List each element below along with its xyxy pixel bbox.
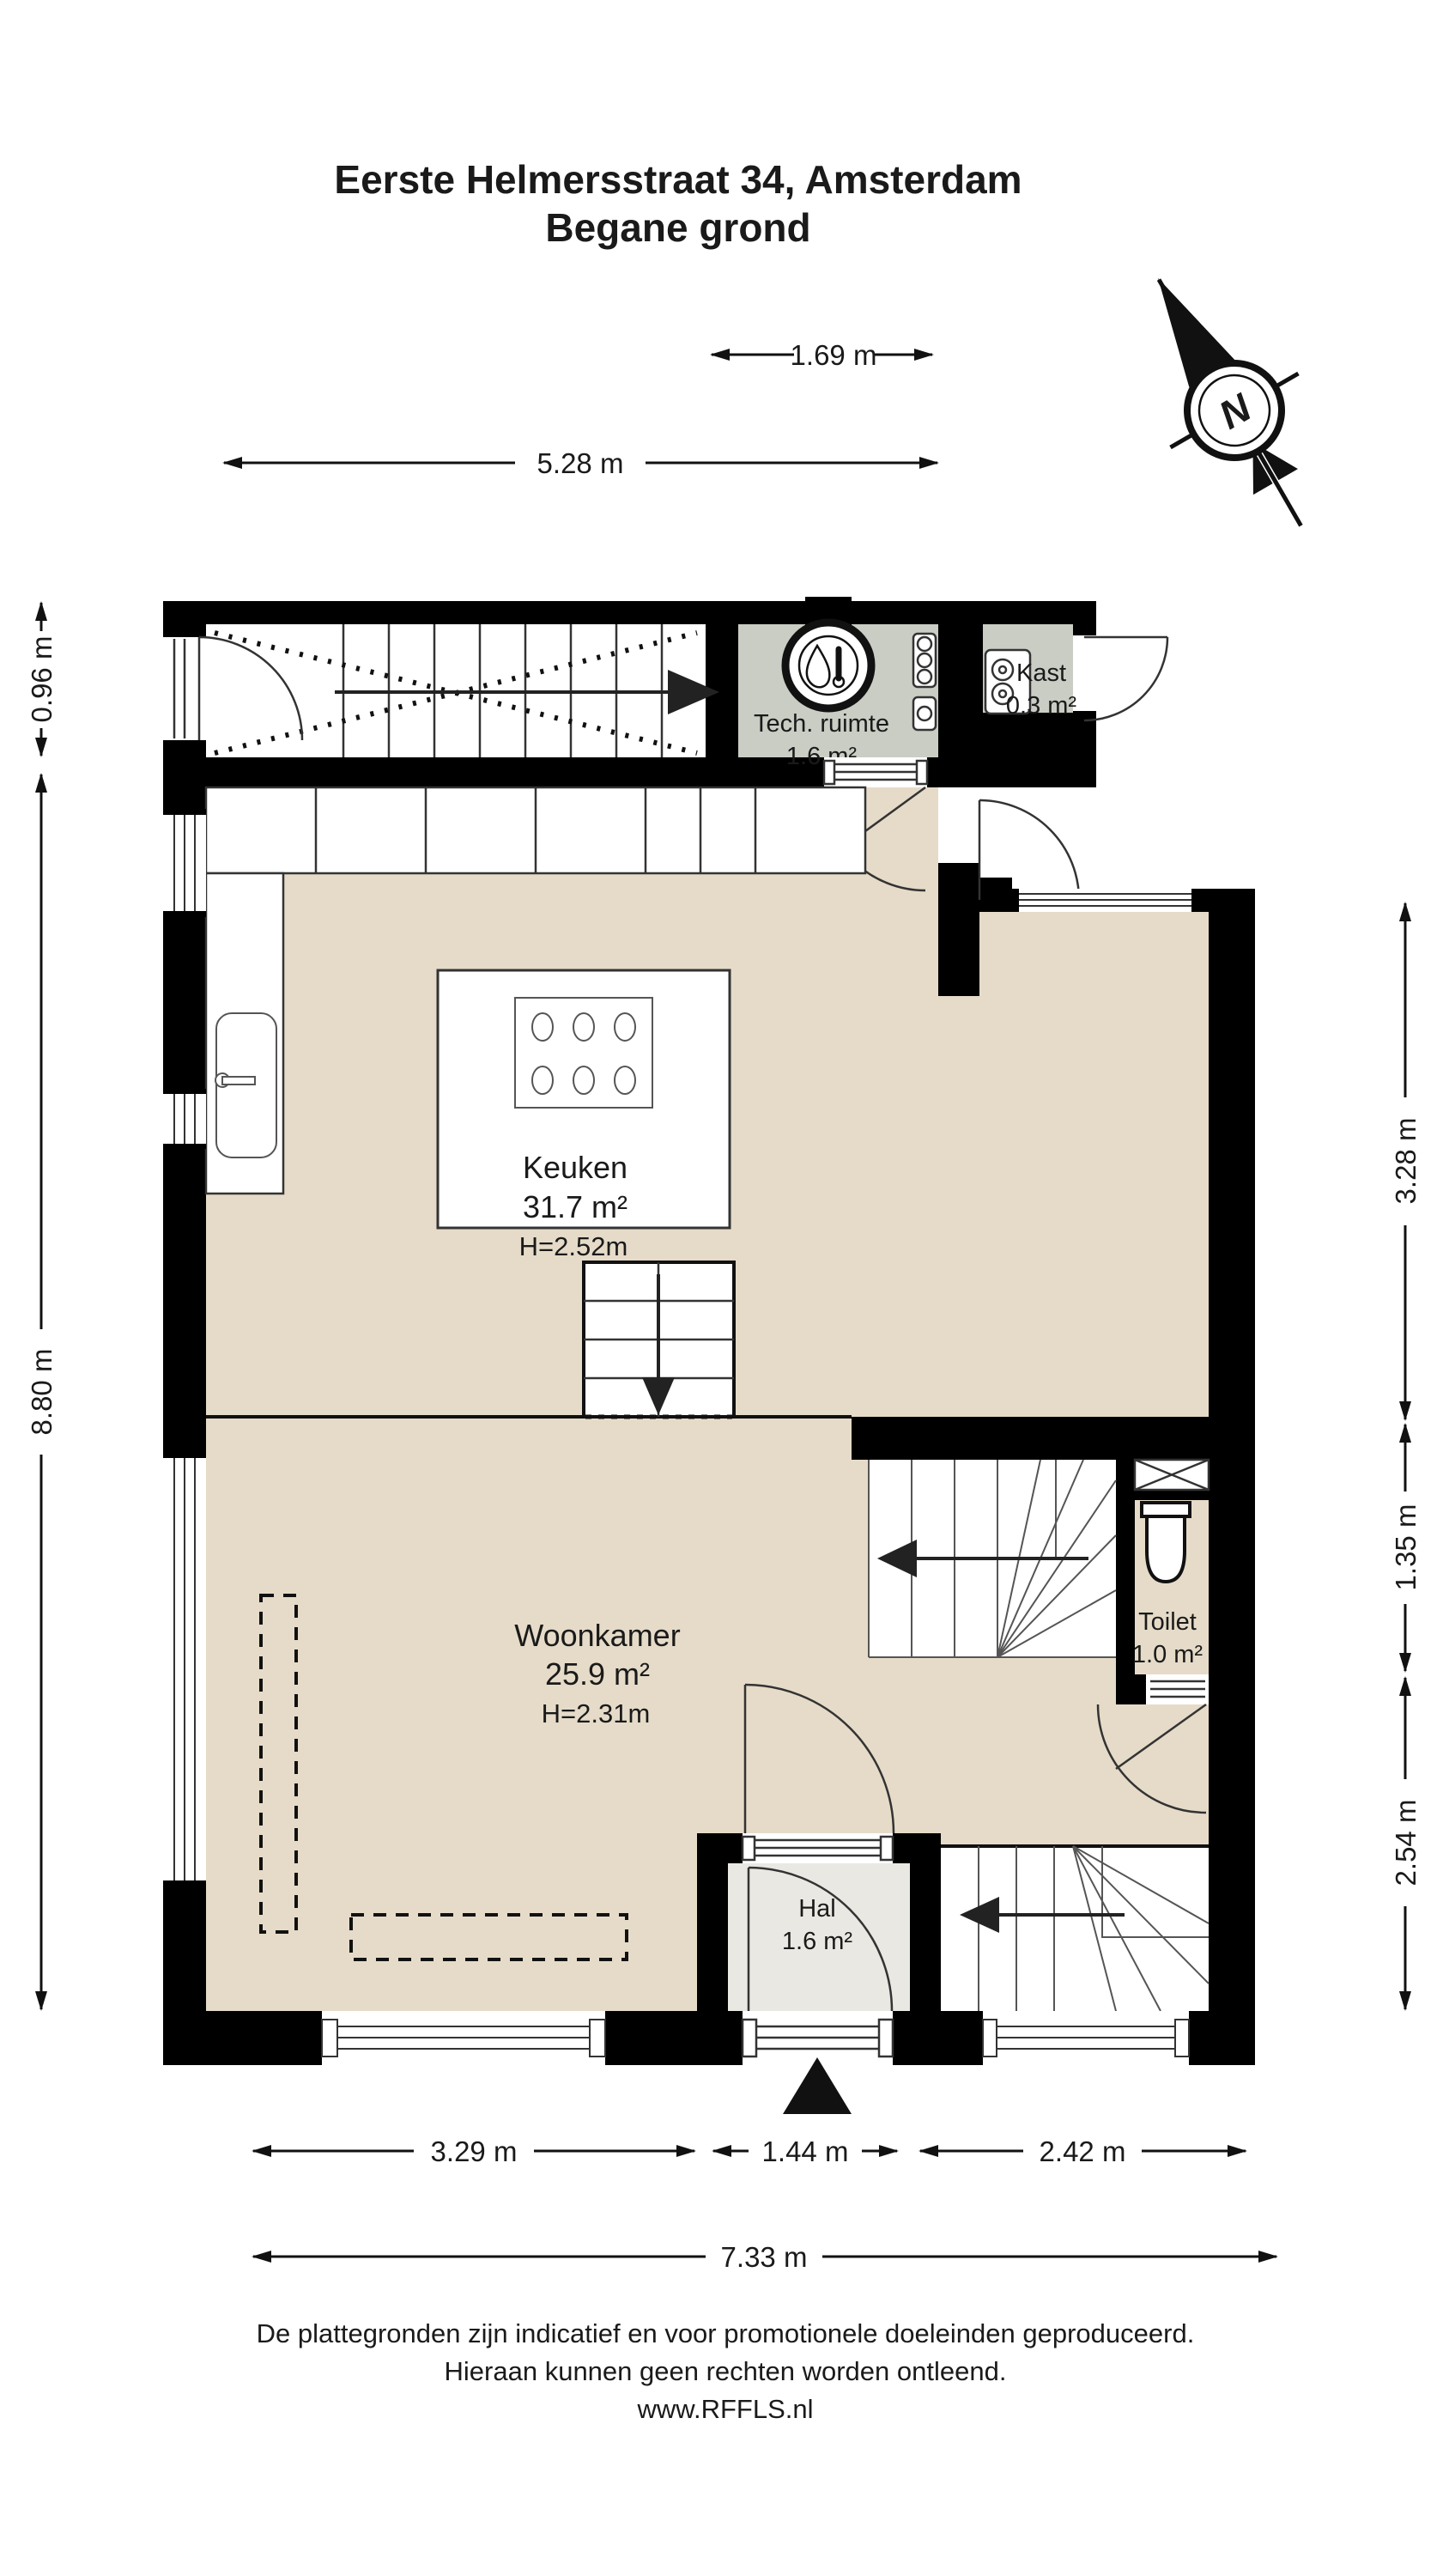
window-keuken-left-small [163,1089,206,1149]
woonkamer-name: Woonkamer [514,1618,680,1653]
keuken-ceiling: H=2.52m [519,1231,628,1261]
keuken-area: 31.7 m² [523,1189,627,1224]
dim-left-height: 8.80 m [26,1349,58,1436]
tech-room-name: Tech. ruimte [754,710,889,738]
duct-hatch-icon [1135,1460,1209,1490]
footer-website: www.RFFLS.nl [637,2394,814,2424]
front-door-upper [163,637,302,740]
footer-line1: De plattegronden zijn indicatief en voor… [257,2318,1195,2348]
entrance-arrow-icon [783,2057,852,2114]
window-woonkamer-left [163,1451,206,1887]
toilet-room-name: Toilet [1138,1608,1197,1636]
dim-bottom-left: 3.29 m [431,2136,518,2167]
compass-icon: N [1094,241,1365,562]
dim-right-upper: 3.28 m [1390,1118,1422,1205]
winder-stairs-lower [941,1846,1209,2011]
footer-disclaimer: De plattegronden zijn indicatief en voor… [257,2318,1195,2424]
kitchen-sink-icon [215,1013,276,1157]
window-bottom-left [322,2011,605,2065]
room-keuken-label: Keuken 31.7 m² H=2.52m [519,1150,628,1261]
kast-room-area: 0.3 m² [1006,692,1077,720]
hal-room-area: 1.6 m² [782,1928,853,1955]
dim-bottom-hal: 1.44 m [762,2136,849,2167]
footer-line2: Hieraan kunnen geen rechten worden ontle… [445,2356,1007,2386]
dim-bottom-total: 7.33 m [721,2241,808,2273]
floorplan-page: Eerste Helmersstraat 34, Amsterdam Began… [0,0,1449,2576]
split-level-stairs [584,1262,734,1417]
winder-stairs-upper [869,1460,1116,1657]
keuken-name: Keuken [523,1150,627,1185]
title-line2: Begane grond [545,205,810,250]
hal-room-name: Hal [798,1895,836,1923]
kast-room-name: Kast [1016,659,1066,687]
dim-right-lower: 2.54 m [1390,1800,1422,1886]
toilet-room-area: 1.0 m² [1132,1641,1203,1668]
dim-left-entry: 0.96 m [26,636,58,723]
kast-door [1084,637,1167,720]
dim-right-toilet: 1.35 m [1390,1504,1422,1591]
title-line1: Eerste Helmersstraat 34, Amsterdam [334,157,1022,202]
window-bottom-right [983,2011,1189,2065]
window-keuken-left [163,809,206,917]
window-right-wing-top [1013,889,1197,912]
meter-units-icon [913,634,936,730]
page-title: Eerste Helmersstraat 34, Amsterdam Began… [334,157,1022,250]
floorplan-canvas: Eerste Helmersstraat 34, Amsterdam Began… [0,0,1449,2576]
toilet-icon [1142,1503,1190,1582]
dim-bottom-right: 2.42 m [1040,2136,1126,2167]
dim-top-width: 5.28 m [537,447,624,479]
woonkamer-area: 25.9 m² [545,1656,650,1692]
room-kast: Kast 0.3 m² [985,637,1167,720]
dim-top-kast: 1.69 m [791,339,877,371]
woonkamer-ceiling: H=2.31m [542,1698,651,1728]
boiler-icon [785,623,871,708]
